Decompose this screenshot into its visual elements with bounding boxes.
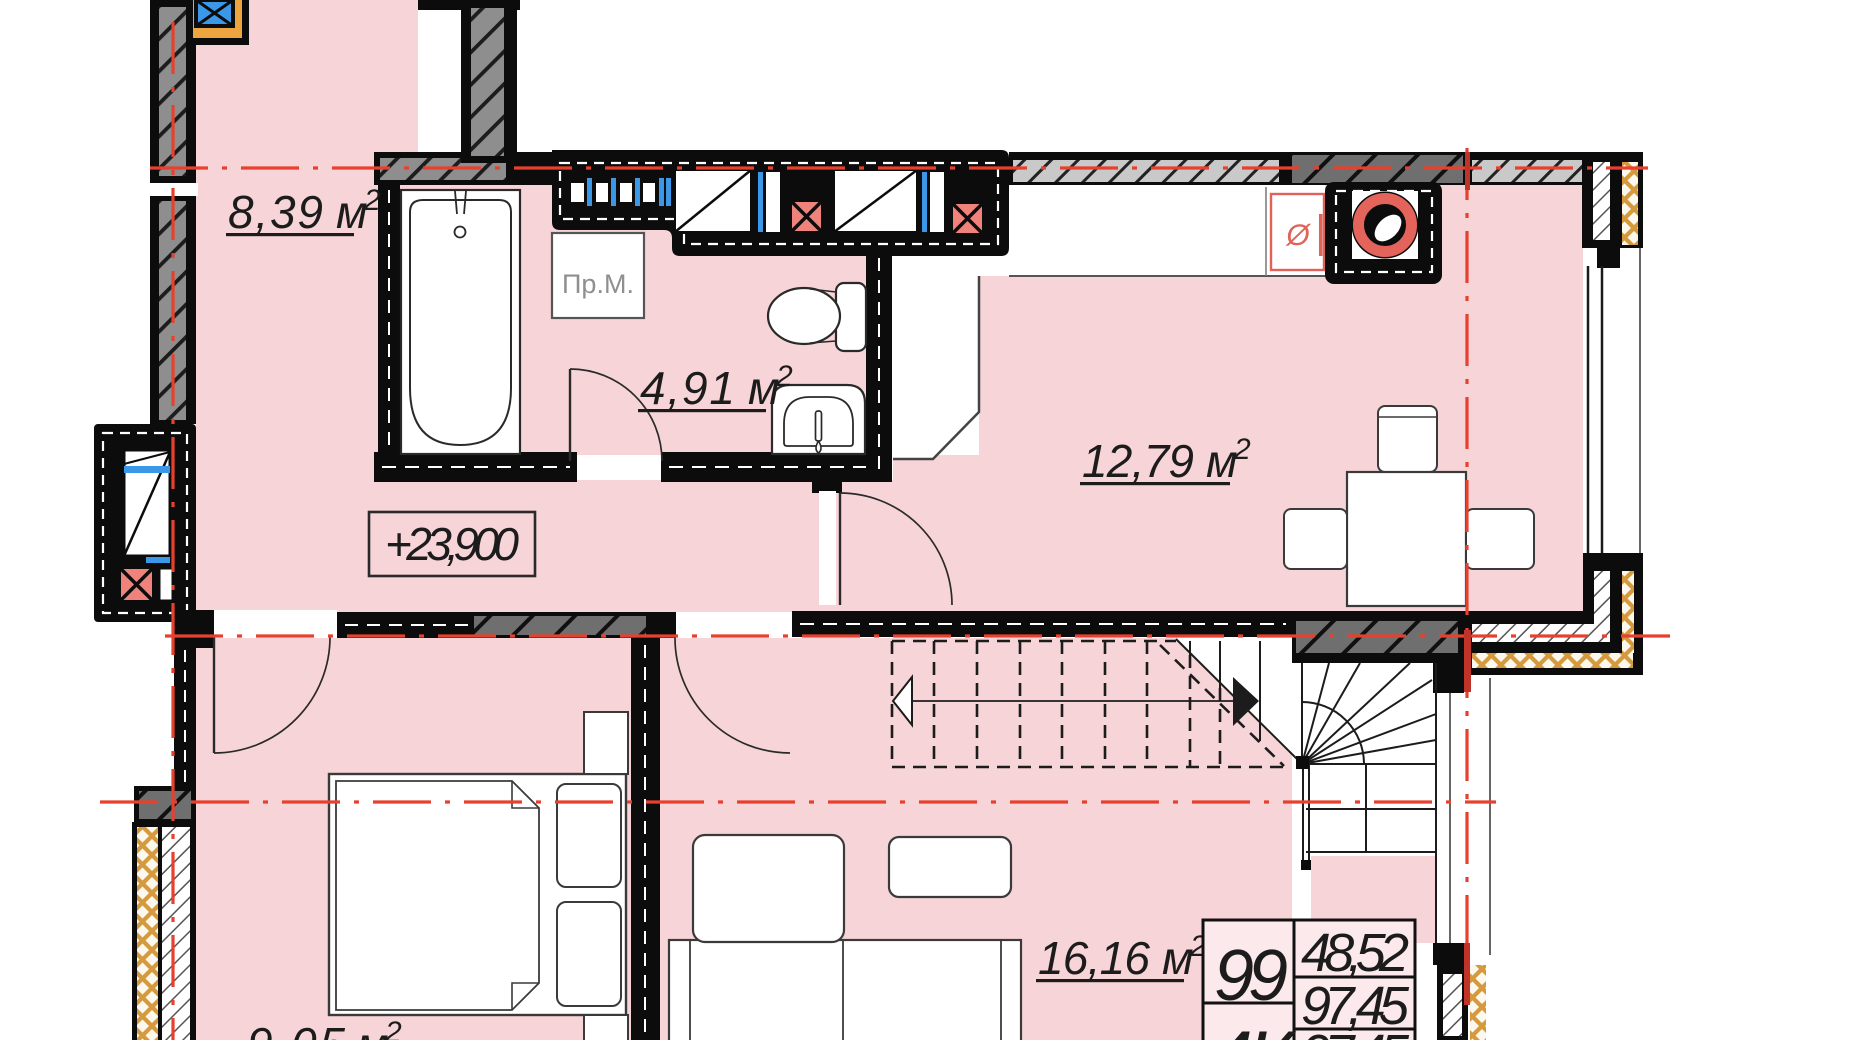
svg-text:8,39: 8,39 bbox=[228, 186, 323, 238]
svg-text:м: м bbox=[336, 186, 368, 238]
svg-text:48,52: 48,52 bbox=[1301, 923, 1409, 983]
svg-text:Пр.М.: Пр.М. bbox=[562, 269, 634, 299]
svg-text:12,79: 12,79 bbox=[1082, 435, 1194, 487]
svg-text:9,05: 9,05 bbox=[247, 1018, 345, 1040]
svg-text:м: м bbox=[357, 1018, 389, 1040]
svg-text:2: 2 bbox=[384, 1016, 402, 1040]
svg-text:Ø: Ø bbox=[1285, 219, 1311, 252]
svg-text:97,45: 97,45 bbox=[1301, 1024, 1410, 1040]
svg-text:м: м bbox=[1206, 435, 1238, 487]
svg-text:4,91: 4,91 bbox=[640, 362, 735, 414]
svg-text:м: м bbox=[1162, 932, 1194, 984]
svg-text:+23,900: +23,900 bbox=[385, 518, 519, 570]
svg-text:4К: 4К bbox=[1209, 1014, 1296, 1040]
svg-text:2: 2 bbox=[363, 184, 381, 217]
svg-text:99: 99 bbox=[1214, 936, 1287, 1016]
svg-text:2: 2 bbox=[775, 360, 793, 393]
svg-text:м: м bbox=[748, 362, 780, 414]
svg-text:16,16: 16,16 bbox=[1038, 932, 1150, 984]
svg-text:2: 2 bbox=[1233, 433, 1251, 466]
